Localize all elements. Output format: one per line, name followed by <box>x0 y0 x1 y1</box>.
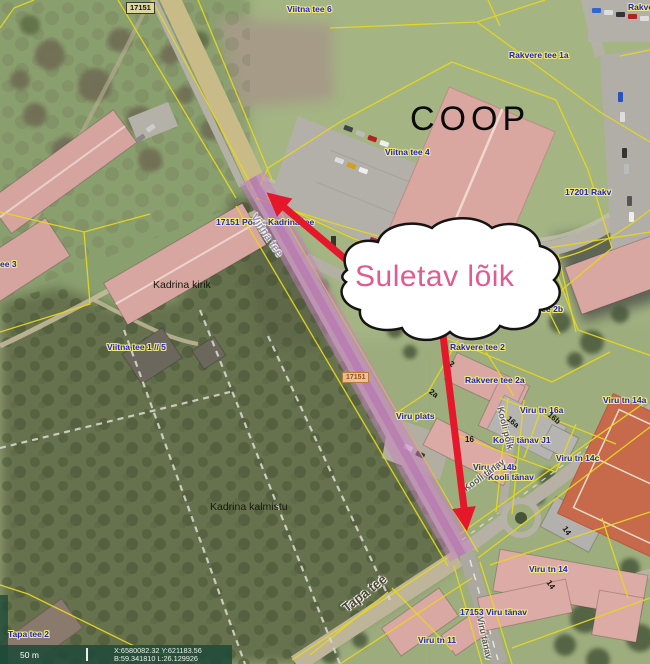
map-label: Viru tn 14a <box>603 396 646 405</box>
coop-roof-sign: COOP <box>410 100 530 139</box>
scale-distance: 50 m <box>20 650 39 660</box>
closure-callout-text: Suletav lõik <box>355 260 514 294</box>
map-label: Tapa tee <box>340 572 390 615</box>
map-label: Viru tn 14c <box>556 454 599 463</box>
map-label: Rakve <box>628 3 650 12</box>
map-label: Viru tn 14 <box>529 565 568 574</box>
map-label: Viru tn 11 <box>418 636 456 645</box>
map-label: Rakvere tee 2 <box>450 343 505 352</box>
map-label: Viru tänav <box>474 616 493 660</box>
map-label: Kooli tänav <box>488 473 534 482</box>
coordinate-bl: B:59.341810 L:26.129926 <box>114 655 202 663</box>
map-label: Kadrina kirik <box>153 280 211 292</box>
map-label: Viitna tee 1 // 5 <box>107 343 166 352</box>
map-label: 2a <box>427 388 439 400</box>
map-label: 14 <box>544 579 556 591</box>
map-label: 2 <box>447 360 456 370</box>
map-label: 16 <box>465 436 474 445</box>
map-label: Viitna tee 4 <box>385 148 430 157</box>
road-number-plate: 17151 <box>126 2 155 14</box>
map-label: Viitna tee 6 <box>287 5 332 14</box>
map-label: 14 <box>560 525 572 537</box>
map-label: 17153 Viru tänav <box>460 608 527 617</box>
map-label: Viru plats <box>396 412 435 421</box>
map-label: ee 3 <box>0 260 17 269</box>
map-labels-layer: Viitna tee 6RakveRakvere tee 1aViitna te… <box>0 0 650 664</box>
map-label: Kadrina kalmistu <box>210 502 288 514</box>
map-label: Rakvere tee 1a <box>509 51 569 60</box>
scale-tick <box>86 648 88 661</box>
cursor-coordinates: X:6580082.32 Y:621183.56 B:59.341810 L:2… <box>114 647 202 663</box>
road-number-plate-closed-section: 17151 <box>342 372 369 383</box>
map-label: Tapa tee 2 <box>8 630 49 639</box>
map-label: 17201 Rakv <box>565 188 611 197</box>
map-label: Rakvere tee 2b <box>503 305 563 314</box>
map-label: Rakvere tee 2a <box>465 376 525 385</box>
scale-bar: 50 m X:6580082.32 Y:621183.56 B:59.34181… <box>0 645 232 664</box>
map-viewport[interactable]: Viitna tee 6RakveRakvere tee 1aViitna te… <box>0 0 650 664</box>
